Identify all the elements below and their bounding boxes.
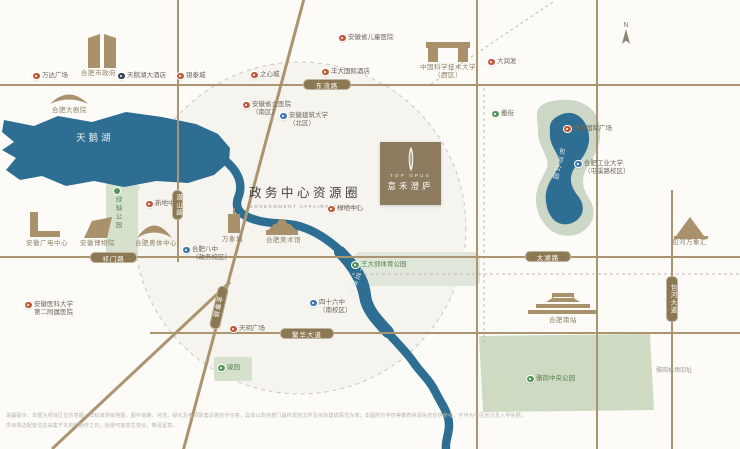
location-map: 东流路 祁门路 太湖路 繁华大道 潜山路 包河大道 金寨路 政务中心资源圈 GO… — [0, 0, 740, 449]
poi-wanda-plaza: 万达广场 — [33, 72, 68, 80]
poi-tianyue-plaza: 天玥广场 — [230, 325, 265, 333]
poi-rt-mart: 大润发 — [488, 58, 517, 66]
poi-swan-lake-hotel: 天鹅湖大酒店 — [118, 72, 166, 80]
label-grand-theater: 合肥大剧院 — [52, 107, 87, 115]
road-pill-dongliu: 东流路 — [303, 79, 351, 90]
poi-dot — [243, 102, 250, 109]
poi-label: 万达广场 — [42, 72, 68, 80]
poi-label: 罍街 — [501, 110, 514, 118]
base-map — [0, 0, 740, 449]
poi-dot — [339, 35, 346, 42]
poi-label: 合肥八中 （政务校区） — [192, 246, 231, 262]
project-name-en: TOP OPUS — [390, 173, 431, 178]
poi-dot — [183, 247, 190, 254]
poi-label: 骆岗中央公园 — [536, 375, 575, 383]
label-city-hall: 合肥市政府 — [81, 70, 116, 78]
grand-theater-icon — [50, 95, 88, 105]
label-broadcast-center: 安徽广电中心 — [26, 240, 68, 248]
poi-intime-city: 银泰城 — [177, 72, 206, 80]
poi-label: 王大郢体育公园 — [361, 261, 407, 269]
poi-dot — [251, 72, 258, 79]
disclaimer-line-2: 项目周边配套信息采集于本资料制作之日，后期可能发生变化，敬请留意。 — [6, 423, 706, 431]
poi-dot — [527, 376, 534, 383]
city-hall-icon — [88, 34, 116, 68]
poi-children-hospital: 安徽省儿童医院 — [339, 34, 394, 42]
poi-dot — [564, 126, 571, 133]
poi-dot — [328, 206, 335, 213]
poi-dot — [280, 113, 287, 120]
poi-luogang-park: 骆岗中央公园 — [527, 375, 575, 383]
road-pill-qimen: 祁门路 — [90, 252, 137, 263]
leaf-emblem-icon — [403, 147, 419, 171]
compass-arrow-icon — [620, 29, 632, 45]
poi-leijie: 罍街 — [492, 110, 514, 118]
project-name-zh: 意禾澄庐 — [387, 180, 433, 192]
poi-junyuan: 骏园 — [218, 364, 240, 372]
map-title-zh: 政务中心资源圈 — [240, 182, 370, 201]
mixc-mall-icon — [674, 217, 708, 239]
lvzhou-park-text: 绿轴公园 — [112, 196, 122, 230]
ustc-gate-icon — [426, 42, 470, 62]
poi-label: 合肥工业大学 （屯溪路校区） — [584, 160, 630, 176]
label-south-station: 合肥南站 — [549, 317, 577, 325]
road-pill-qianshan: 潜山路 — [172, 190, 183, 220]
label-mixc-mall: 包河万象汇 — [672, 239, 707, 247]
poi-label: 之心城 — [260, 71, 280, 79]
poi-label: 骏园 — [227, 364, 240, 372]
poi-dot — [492, 111, 499, 118]
luogang-note-label: 骆岗机场旧址 — [656, 365, 692, 374]
poi-fengda-hotel: 丰大国际酒店 — [322, 68, 370, 76]
label-ustc: 中国科学技术大学 （西区） — [415, 64, 481, 81]
poi-hfut: 合肥工业大学 （屯溪路校区） — [575, 160, 630, 176]
poi-no46-school: 四十六中 （南校区） — [310, 299, 352, 315]
poi-label: 安徽建筑大学 （北区） — [289, 112, 328, 128]
road-pill-baohe: 包河大道 — [666, 276, 678, 322]
poi-dot — [33, 73, 40, 80]
poi-dot — [25, 302, 32, 309]
poi-label: 安徽医科大学 第二附属医院 — [34, 301, 73, 317]
poi-label: 安徽省儿童医院 — [348, 34, 394, 42]
south-station-icon — [528, 293, 598, 314]
poi-dot — [322, 69, 329, 76]
road-pill-taihu: 太湖路 — [525, 251, 571, 262]
project-logo-card: TOP OPUS 意禾澄庐 — [380, 142, 441, 205]
park-dot-icon — [114, 188, 120, 194]
poi-label: 银泰城 — [186, 72, 206, 80]
poi-dot — [488, 59, 495, 66]
poi-dot — [146, 201, 153, 208]
compass: N — [617, 22, 635, 47]
poi-label: 加侨国际广场 — [573, 125, 612, 133]
broadcast-center-icon — [30, 212, 60, 237]
poi-label: 大润发 — [497, 58, 517, 66]
lvzhou-park-label: 绿轴公园 — [112, 188, 122, 230]
poi-dot — [575, 161, 582, 168]
poi-dot — [352, 262, 359, 269]
poi-dot — [218, 365, 225, 372]
road-pill-fanhua: 繁华大道 — [280, 328, 334, 339]
poi-wangdaying-park: 王大郢体育公园 — [352, 261, 407, 269]
swan-lake-label: 天鹅湖 — [76, 130, 114, 144]
poi-label: 丰大国际酒店 — [331, 68, 370, 76]
poi-dot — [310, 300, 317, 307]
label-museum: 安徽博物院 — [80, 240, 115, 248]
luogang-park-shape — [479, 334, 654, 412]
poi-greenland-center: 绿地中心 — [328, 205, 363, 213]
poi-label: 天鹅湖大酒店 — [127, 72, 166, 80]
poi-dot — [118, 73, 125, 80]
poi-ahjzu: 安徽建筑大学 （北区） — [280, 112, 328, 128]
poi-no8-school: 合肥八中 （政务校区） — [183, 246, 231, 262]
compass-n-label: N — [617, 22, 635, 29]
poi-anmed-hospital: 安徽医科大学 第二附属医院 — [25, 301, 73, 317]
poi-label: 绿地中心 — [337, 205, 363, 213]
disclaimer-line-1: 温馨提示：本图为项目区位示意图，非标准测绘地图，图中道路、河流、绿化及各项配套设… — [6, 413, 706, 421]
label-mixc: 万象城 — [222, 236, 243, 244]
poi-label: 天玥广场 — [239, 325, 265, 333]
label-sports-center: 合肥奥体中心 — [135, 240, 177, 248]
poi-zhixincheng: 之心城 — [251, 71, 280, 79]
poi-jiaqiao-plaza: 加侨国际广场 — [564, 125, 612, 133]
label-art-hall: 合肥美术馆 — [266, 237, 301, 245]
poi-dot — [177, 73, 184, 80]
poi-label: 四十六中 （南校区） — [319, 299, 352, 315]
poi-dot — [230, 326, 237, 333]
